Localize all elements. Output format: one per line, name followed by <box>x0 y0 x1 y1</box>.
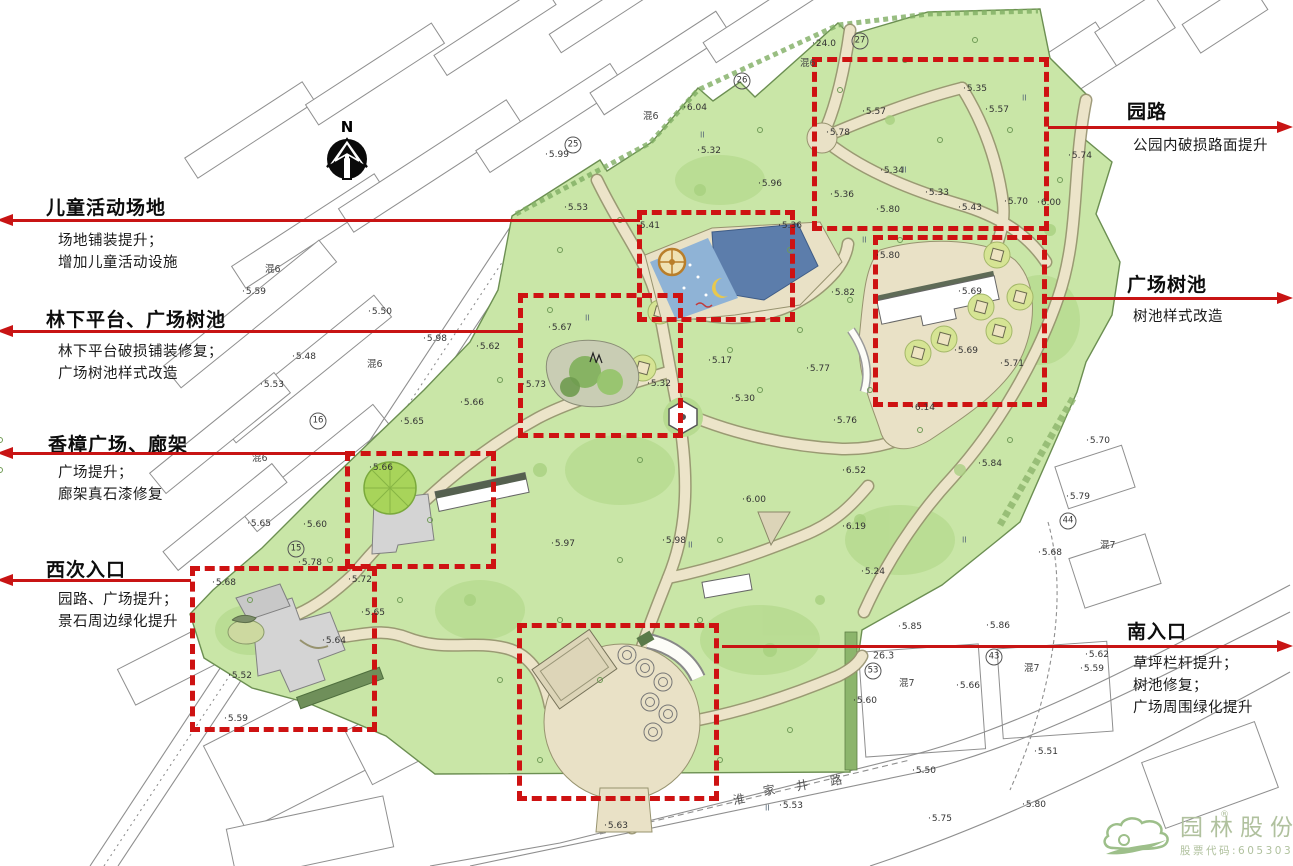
registered-mark: ® <box>1220 810 1229 820</box>
annotation-title-children-area: 儿童活动场地 <box>46 193 166 220</box>
desc-line: 林下平台破损铺装修复； <box>58 342 223 364</box>
spot-elevation: 5.30 <box>731 394 755 404</box>
spot-elevation: 5.60 <box>303 520 327 530</box>
annotation-title-west-entrance: 西次入口 <box>46 555 126 582</box>
spot-elevation: 5.80 <box>1022 800 1046 810</box>
north-label: N <box>325 118 369 136</box>
spot-elevation: 5.72 <box>348 575 372 585</box>
spot-elevation: 5.17 <box>708 356 732 366</box>
spot-elevation: 5.70 <box>1086 436 1110 446</box>
spot-elevation: 5.79 <box>1066 492 1090 502</box>
company-logo: 园林股份 股票代码:605303 ® <box>1100 814 1293 860</box>
spot-elevation: 5.57 <box>862 107 886 117</box>
spot-elevation: 5.36 <box>778 221 802 231</box>
spot-elevation: 5.99 <box>545 150 569 160</box>
spot-elevation: 5.57 <box>985 105 1009 115</box>
spot-elevation: 5.76 <box>833 416 857 426</box>
logo-stock-code: 股票代码:605303 <box>1180 843 1293 858</box>
highlight-zone-3 <box>518 293 683 438</box>
spot-elevation: 5.60 <box>853 696 877 706</box>
desc-line: 草坪栏杆提升； <box>1133 654 1253 676</box>
map-text: II <box>765 804 770 813</box>
north-arrow-icon <box>325 137 369 181</box>
circled-parcel-number: 16 <box>310 413 327 430</box>
spot-elevation: 6.00 <box>1037 198 1061 208</box>
spot-elevation: 6.19 <box>842 522 866 532</box>
annotation-arrow-garden-path <box>1048 126 1278 129</box>
cloud-logo-icon <box>1100 814 1172 860</box>
spot-elevation: 5.24 <box>861 567 885 577</box>
spot-elevation: 5.34 <box>880 166 904 176</box>
spot-elevation: 5.50 <box>368 307 392 317</box>
annotation-desc-camphor-plaza: 广场提升； 廊架真石漆修复 <box>58 463 163 507</box>
annotation-arrow-children-area <box>12 219 640 222</box>
map-text: 混7 <box>899 675 915 689</box>
spot-elevation: 6.14 <box>911 403 935 413</box>
map-text: 混7 <box>1024 660 1040 674</box>
annotation-desc-garden-path: 公园内破损路面提升 <box>1133 136 1268 158</box>
spot-elevation: 5.78 <box>298 558 322 568</box>
map-text: II <box>902 166 907 175</box>
annotation-title-garden-path: 园路 <box>1127 97 1167 124</box>
spot-elevation: 5.96 <box>758 179 782 189</box>
map-text: II <box>962 536 967 545</box>
spot-elevation: 5.74 <box>1068 151 1092 161</box>
map-text: II <box>862 236 867 245</box>
annotation-title-understory-platform: 林下平台、广场树池 <box>46 305 226 332</box>
circled-parcel-number: 26 <box>734 73 751 90</box>
annotation-desc-west-entrance: 园路、广场提升； 景石周边绿化提升 <box>58 590 178 634</box>
map-text: 混6 <box>643 108 659 122</box>
desc-line: 园路、广场提升； <box>58 590 178 612</box>
spot-elevation: 5.59 <box>1080 664 1104 674</box>
annotation-desc-plaza-tree-pits: 树池样式改造 <box>1133 307 1223 329</box>
annotation-arrow-camphor-plaza <box>12 452 346 455</box>
spot-elevation: 5.69 <box>954 346 978 356</box>
north-arrow: N <box>325 118 369 185</box>
annotation-arrow-west-entrance <box>12 579 191 582</box>
spot-elevation: 5.65 <box>400 417 424 427</box>
circled-parcel-number: 53 <box>865 663 882 680</box>
desc-line: 广场周围绿化提升 <box>1133 698 1253 720</box>
spot-elevation: 5.98 <box>423 334 447 344</box>
spot-elevation: 5.68 <box>212 578 236 588</box>
desc-line: 广场树池样式改造 <box>58 364 223 386</box>
annotation-desc-children-area: 场地铺装提升； 增加儿童活动设施 <box>58 231 178 275</box>
spot-elevation: 24.0 <box>812 39 836 49</box>
annotation-arrow-south-entrance <box>722 645 1278 648</box>
spot-elevation: 5.84 <box>978 459 1002 469</box>
desc-line: 增加儿童活动设施 <box>58 253 178 275</box>
spot-elevation: 5.50 <box>912 766 936 776</box>
desc-line: 树池修复； <box>1133 676 1253 698</box>
spot-elevation: 5.53 <box>260 380 284 390</box>
annotation-title-south-entrance: 南入口 <box>1127 617 1187 644</box>
spot-elevation: 5.48 <box>292 352 316 362</box>
spot-elevation: 5.66 <box>369 463 393 473</box>
map-text: II <box>1022 94 1027 103</box>
desc-line: 公园内破损路面提升 <box>1133 136 1268 158</box>
map-text: 26.3 <box>873 651 894 662</box>
spot-elevation: 6.00 <box>742 495 766 505</box>
annotation-arrow-understory-platform <box>12 330 519 333</box>
spot-elevation: 5.66 <box>460 398 484 408</box>
spot-elevation: 5.51 <box>1034 747 1058 757</box>
annotation-desc-understory-platform: 林下平台破损铺装修复； 广场树池样式改造 <box>58 342 223 386</box>
spot-elevation: 5.85 <box>898 622 922 632</box>
spot-elevation: 5.82 <box>831 288 855 298</box>
highlight-zone-7 <box>517 623 719 801</box>
spot-elevation: 5.71 <box>1000 359 1024 369</box>
map-text: 混6 <box>800 55 816 69</box>
spot-elevation: 6.04 <box>683 103 707 113</box>
circled-parcel-number: 25 <box>565 137 582 154</box>
spot-elevation: 5.65 <box>247 519 271 529</box>
spot-elevation: 5.63 <box>604 821 628 831</box>
desc-line: 广场提升； <box>58 463 163 485</box>
spot-elevation: 5.53 <box>564 203 588 213</box>
annotation-desc-south-entrance: 草坪栏杆提升； 树池修复； 广场周围绿化提升 <box>1133 654 1253 719</box>
spot-elevation: 5.67 <box>548 323 572 333</box>
spot-elevation: 5.68 <box>1038 548 1062 558</box>
spot-elevation: 5.66 <box>956 681 980 691</box>
annotation-title-plaza-tree-pits: 广场树池 <box>1127 270 1207 297</box>
desc-line: 廊架真石漆修复 <box>58 485 163 507</box>
spot-elevation: 5.59 <box>224 714 248 724</box>
spot-elevation: 5.52 <box>228 671 252 681</box>
map-text: 混6 <box>367 356 383 370</box>
map-text: II <box>688 541 693 550</box>
circled-parcel-number: 27 <box>852 33 869 50</box>
highlight-zone-6 <box>190 566 377 732</box>
spot-elevation: 5.32 <box>697 146 721 156</box>
desc-line: 树池样式改造 <box>1133 307 1223 329</box>
spot-elevation: 5.75 <box>928 814 952 824</box>
spot-elevation: 5.78 <box>826 128 850 138</box>
map-text: 混6 <box>265 261 281 275</box>
spot-elevation: 5.64 <box>322 636 346 646</box>
spot-elevation: 5.80 <box>876 251 900 261</box>
spot-elevation: 5.62 <box>476 342 500 352</box>
spot-elevation: 5.32 <box>647 379 671 389</box>
logo-company-name: 园林股份 <box>1180 817 1293 840</box>
spot-elevation: 5.53 <box>779 801 803 811</box>
spot-elevation: 5.62 <box>1085 650 1109 660</box>
spot-elevation: 6.52 <box>842 466 866 476</box>
circled-parcel-number: 44 <box>1060 513 1077 530</box>
spot-elevation: 5.80 <box>876 205 900 215</box>
spot-elevation: 5.70 <box>1004 197 1028 207</box>
spot-elevation: 5.35 <box>963 84 987 94</box>
desc-line: 场地铺装提升； <box>58 231 178 253</box>
spot-elevation: 5.41 <box>636 221 660 231</box>
map-text: 混7 <box>1100 537 1116 551</box>
annotation-arrow-plaza-tree-pits <box>1046 297 1278 300</box>
highlight-zone-5 <box>345 451 496 569</box>
spot-elevation: 5.69 <box>958 287 982 297</box>
spot-elevation: 5.43 <box>958 203 982 213</box>
desc-line: 景石周边绿化提升 <box>58 612 178 634</box>
spot-elevation: 5.97 <box>551 539 575 549</box>
park-renovation-plan: 5.996.0424.0混6混65.575.355.575.785.345.33… <box>0 0 1293 866</box>
spot-elevation: 5.73 <box>522 380 546 390</box>
spot-elevation: 5.77 <box>806 364 830 374</box>
circled-parcel-number: 43 <box>986 649 1003 666</box>
circled-parcel-number: 15 <box>288 541 305 558</box>
spot-elevation: 5.98 <box>662 536 686 546</box>
spot-elevation: 5.65 <box>361 608 385 618</box>
map-text: II <box>700 131 705 140</box>
map-text: II <box>585 314 590 323</box>
spot-elevation: 5.86 <box>986 621 1010 631</box>
spot-elevation: 5.59 <box>242 287 266 297</box>
spot-elevation: 5.36 <box>830 190 854 200</box>
spot-elevation: 5.33 <box>925 188 949 198</box>
